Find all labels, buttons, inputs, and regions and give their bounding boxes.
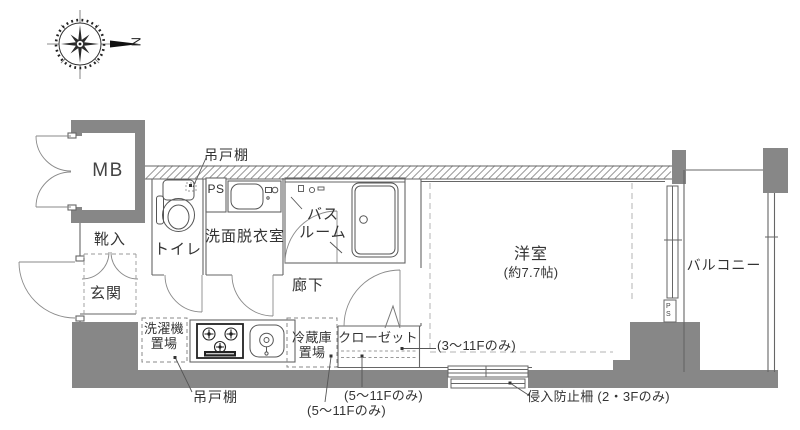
room-label-hallway: 廊下 bbox=[292, 277, 324, 295]
annotation-floors-3-to-11: (3〜11Fのみ) bbox=[437, 338, 516, 353]
room-label-meter-box: MB bbox=[92, 160, 124, 182]
room-label-bathroom: バス ルーム bbox=[299, 206, 347, 241]
room-label-western-room-size: (約7.7帖) bbox=[504, 265, 559, 280]
room-label-pipe-space-small: PS bbox=[666, 303, 673, 319]
washbasin-fixture bbox=[228, 181, 281, 212]
intrusion-fence bbox=[451, 379, 525, 388]
closet-bifold-door-icon bbox=[385, 306, 400, 328]
room-label-balcony: バルコニー bbox=[687, 257, 762, 274]
room-label-western-room: 洋室 bbox=[514, 246, 548, 265]
room-label-shoe-cabinet: 靴入 bbox=[94, 231, 126, 249]
compass-north-label: N bbox=[128, 37, 143, 46]
balcony-rail bbox=[765, 193, 778, 372]
shower-fixture bbox=[299, 186, 325, 193]
hatched-wall bbox=[145, 166, 672, 180]
annotation-hanging-cupboard-top: 吊戸棚 bbox=[204, 147, 249, 164]
sink-fixture bbox=[250, 325, 284, 357]
room-label-pipe-space: PS bbox=[207, 182, 224, 196]
room-label-fridge-space: 冷蔵庫 置場 bbox=[292, 330, 332, 361]
compass-icon bbox=[47, 10, 139, 79]
annotation-floors-5-to-11-closet: (5〜11Fのみ) bbox=[344, 388, 423, 403]
floor-plan: MB 靴入 玄関 トイレ PS 洗面脱衣室 バス ルーム 廊下 洗濯機 置場 冷… bbox=[0, 0, 800, 430]
annotation-hanging-cupboard-bottom: 吊戸棚 bbox=[193, 389, 238, 406]
stove-fixture bbox=[197, 324, 243, 358]
room-label-washer-space: 洗濯機 置場 bbox=[144, 321, 184, 352]
annotation-floors-5-to-11-fridge: (5〜11Fのみ) bbox=[307, 403, 386, 418]
bathtub-fixture bbox=[352, 183, 398, 257]
toilet-fixture bbox=[157, 180, 195, 232]
room-label-toilet: トイレ bbox=[154, 241, 202, 259]
room-label-entrance: 玄関 bbox=[90, 285, 122, 303]
room-label-washroom: 洗面脱衣室 bbox=[205, 228, 285, 246]
floor-plan-drawing bbox=[0, 0, 800, 430]
annotation-intrusion-fence: 侵入防止柵 (2・3Fのみ) bbox=[527, 389, 670, 404]
room-label-closet: クローゼット bbox=[338, 330, 418, 345]
